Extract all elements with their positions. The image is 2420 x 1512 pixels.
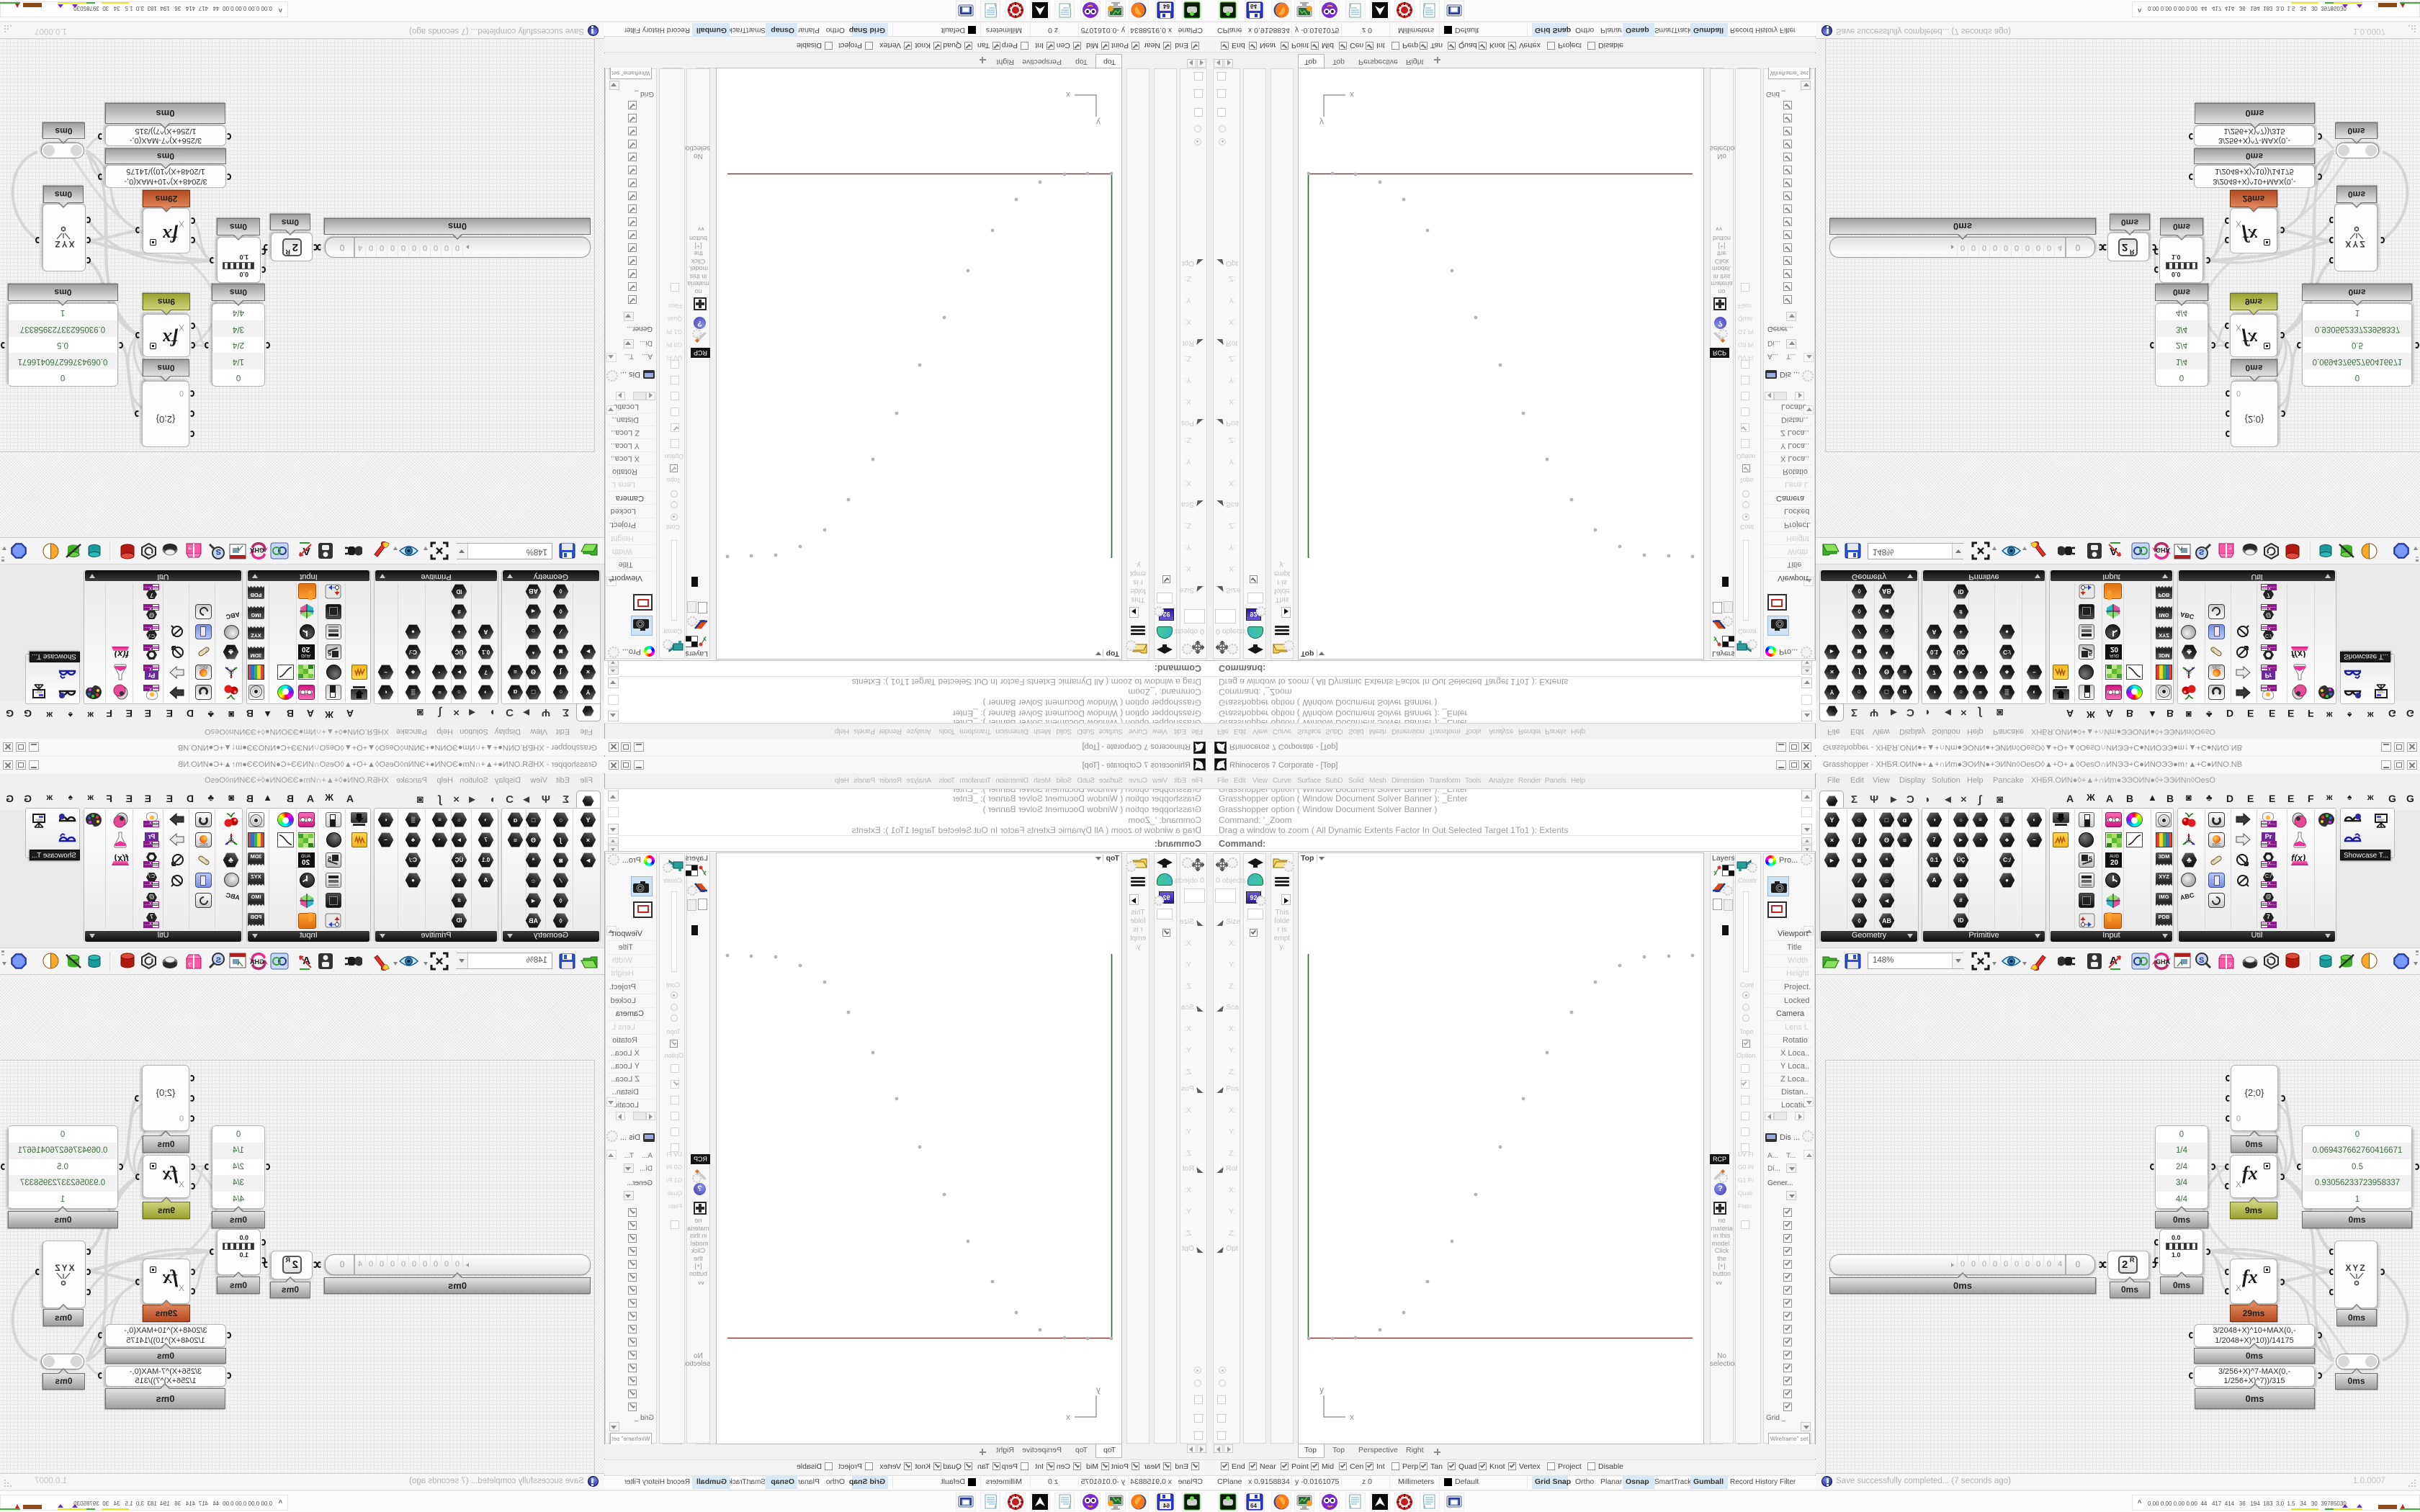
svg-text:?: ? — [2228, 544, 2232, 550]
svg-text:64: 64 — [1250, 3, 1257, 9]
svg-text:y: y — [1096, 1385, 1101, 1395]
svg-text:x: x — [1350, 1412, 1354, 1422]
svg-text:y: y — [1319, 1385, 1324, 1395]
svg-text:GHA: GHA — [2156, 958, 2171, 966]
svg-text:64: 64 — [1250, 1503, 1257, 1509]
svg-text:64: 64 — [1163, 1503, 1170, 1509]
svg-text:S: S — [2199, 547, 2204, 556]
svg-text:S: S — [216, 956, 221, 965]
svg-text:x: x — [1066, 90, 1070, 100]
svg-text:y: y — [1319, 117, 1324, 127]
svg-text:S: S — [216, 547, 221, 556]
svg-text:x: x — [1350, 90, 1354, 100]
svg-text:GHA: GHA — [2156, 546, 2171, 554]
svg-text:GHA: GHA — [250, 958, 265, 966]
svg-text:S: S — [2199, 956, 2204, 965]
svg-text:x: x — [1066, 1412, 1070, 1422]
svg-text:?: ? — [2228, 962, 2232, 968]
svg-text:GHA: GHA — [250, 546, 265, 554]
svg-text:64: 64 — [1163, 3, 1170, 9]
svg-text:y: y — [1096, 117, 1101, 127]
svg-text:?: ? — [188, 962, 192, 968]
svg-text:?: ? — [188, 544, 192, 550]
